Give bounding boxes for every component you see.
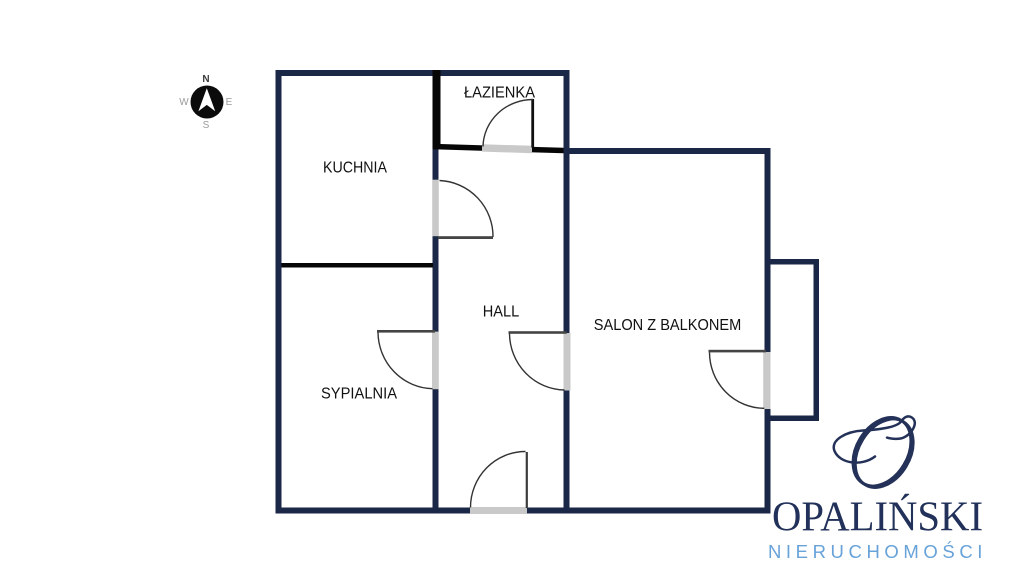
svg-text:S: S: [203, 120, 210, 131]
svg-text:E: E: [226, 97, 233, 108]
svg-text:ŁAZIENKA: ŁAZIENKA: [464, 84, 535, 101]
svg-text:SALON Z BALKONEM: SALON Z BALKONEM: [594, 317, 742, 334]
svg-text:NIERUCHOMOŚCI: NIERUCHOMOŚCI: [768, 541, 987, 562]
svg-text:N: N: [202, 74, 209, 85]
svg-text:W: W: [179, 97, 189, 108]
svg-text:SYPIALNIA: SYPIALNIA: [321, 385, 397, 402]
svg-text:KUCHNIA: KUCHNIA: [323, 159, 387, 176]
svg-text:HALL: HALL: [483, 303, 520, 320]
svg-text:OPALIŃSKI: OPALIŃSKI: [772, 494, 983, 541]
